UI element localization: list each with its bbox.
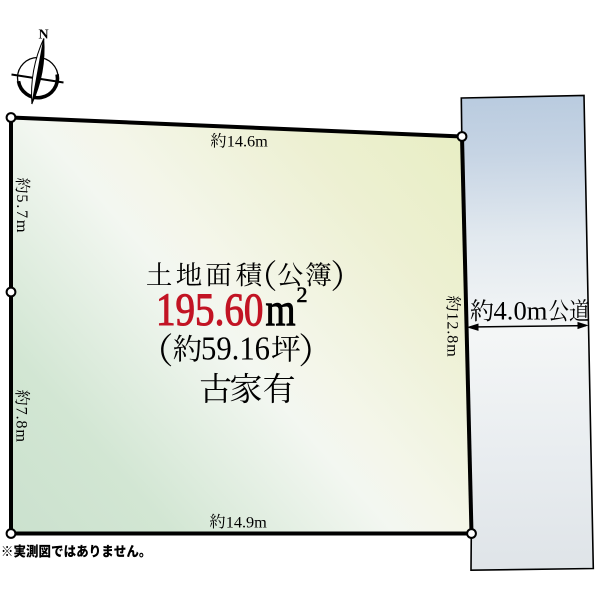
- svg-text:N: N: [39, 27, 49, 42]
- svg-text:5.7m: 5.7m: [13, 194, 32, 234]
- svg-text:12.8m: 12.8m: [444, 312, 463, 357]
- svg-text:4.0m: 4.0m: [494, 296, 548, 326]
- svg-text:59.16: 59.16: [201, 331, 270, 368]
- svg-text:m: m: [265, 285, 295, 336]
- svg-text:14.9m: 14.9m: [226, 512, 267, 531]
- svg-text:195.60: 195.60: [156, 285, 263, 336]
- svg-text:14.6m: 14.6m: [227, 132, 268, 151]
- svg-text:2: 2: [297, 282, 308, 307]
- svg-text:7.8m: 7.8m: [13, 407, 32, 443]
